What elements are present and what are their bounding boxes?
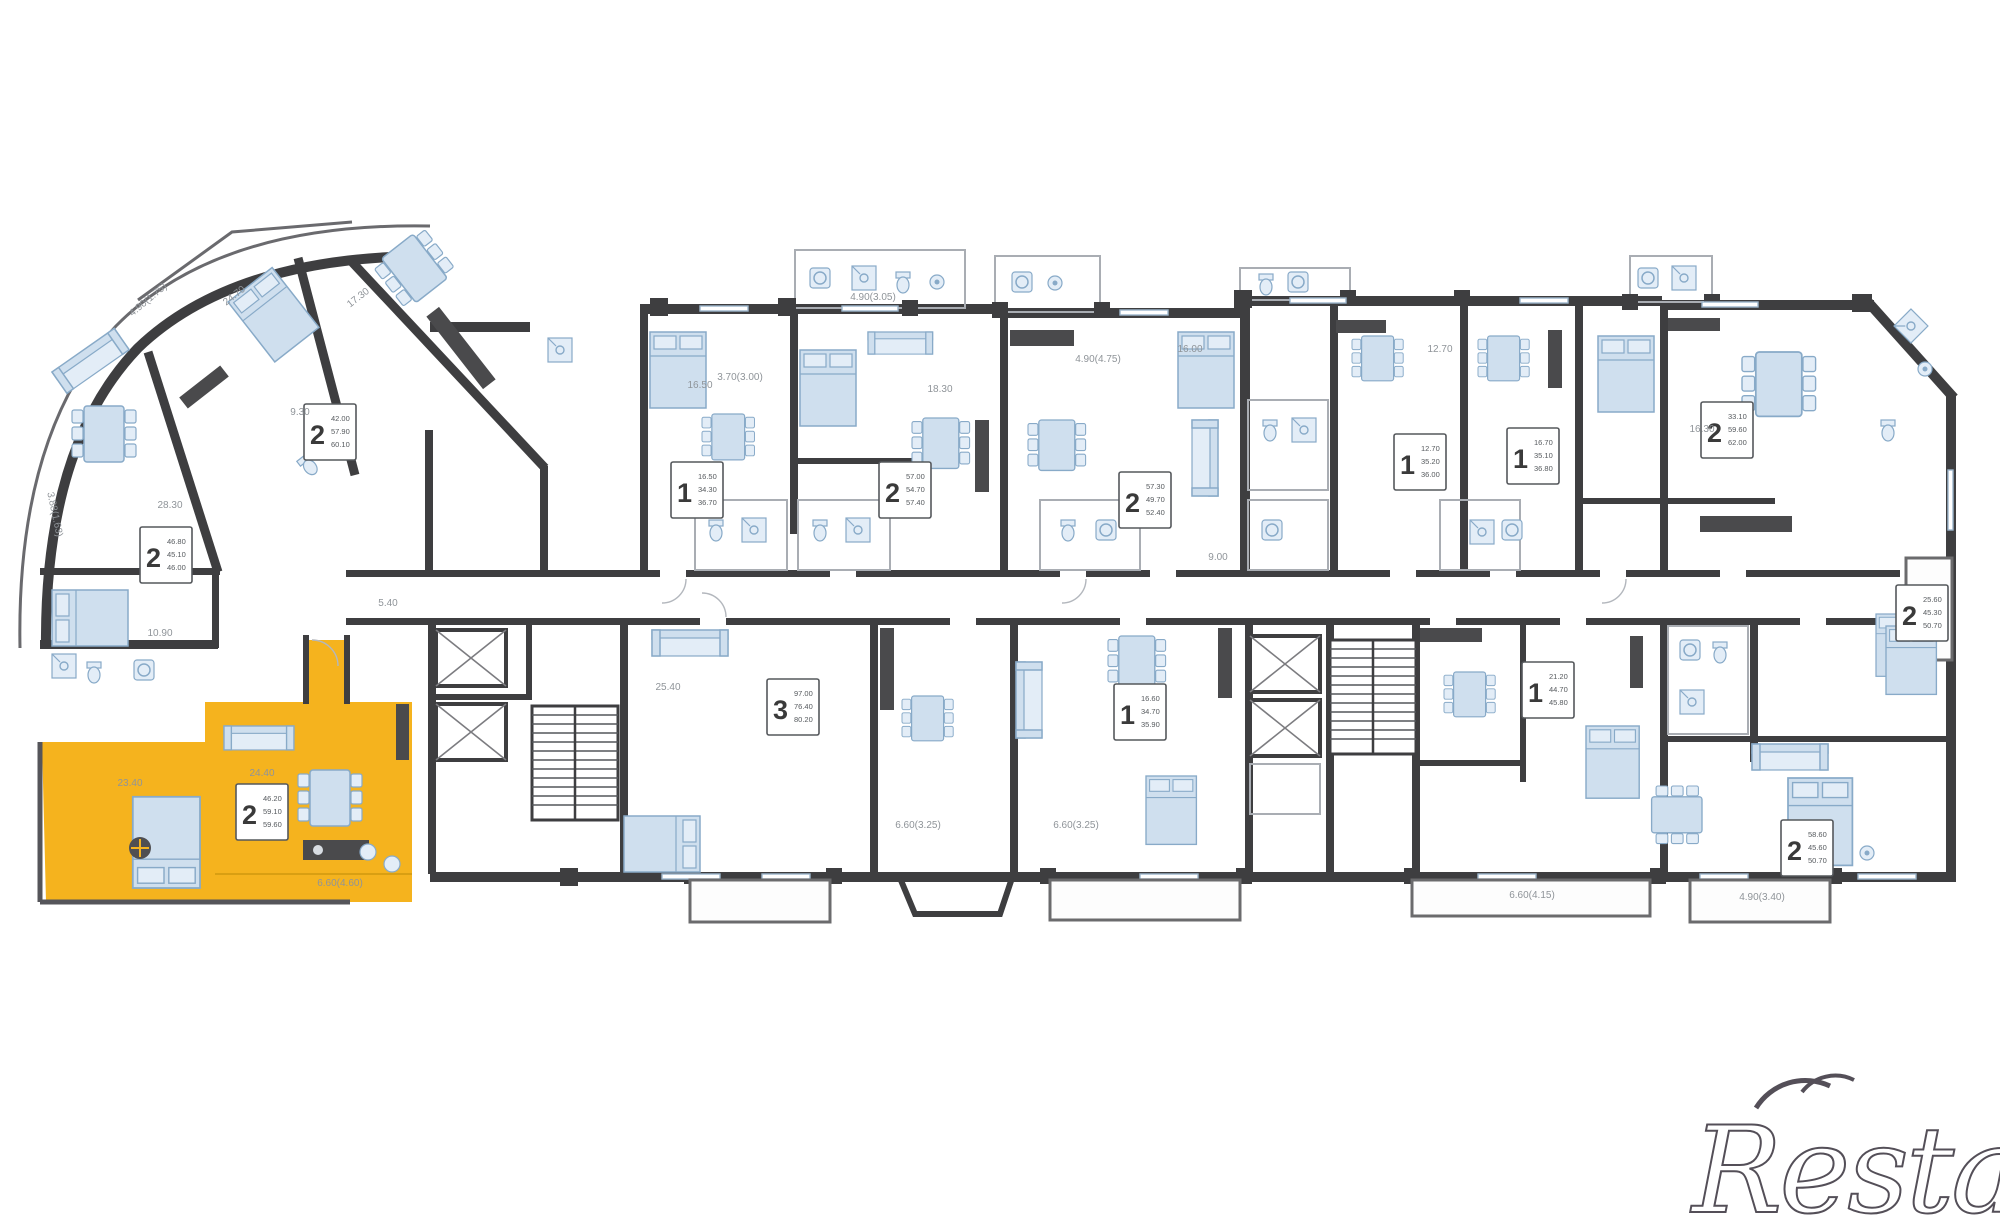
apartment-rooms-count: 2 <box>146 543 161 573</box>
apartment-rooms-count: 2 <box>885 478 900 508</box>
apartment-area-line: 59.60 <box>263 820 282 829</box>
washer-icon <box>1288 272 1308 292</box>
kitchen-counter-icon <box>880 628 894 710</box>
dimension-label: 24.40 <box>249 768 274 779</box>
apartment-label-highlighted[interactable]: 246.2059.1059.60 <box>236 784 288 840</box>
dimension-label: 4.90(4.75) <box>1075 354 1121 365</box>
shower-icon <box>1672 266 1696 290</box>
toilet-icon <box>1881 420 1895 441</box>
dimension-label: 16.00 <box>1177 344 1202 355</box>
dimension-label: 4.90(3.40) <box>1739 892 1785 903</box>
toilet-icon <box>813 520 827 541</box>
apartment-rooms-count: 2 <box>310 420 325 450</box>
shower-icon <box>52 654 76 678</box>
elevator-icon <box>1250 700 1320 756</box>
sink-icon <box>1048 276 1062 290</box>
shaft <box>1250 764 1320 814</box>
sofa-icon <box>224 726 294 750</box>
apartment-label[interactable]: 112.7035.2036.00 <box>1394 434 1446 490</box>
apartment-area-line: 34.30 <box>698 485 717 494</box>
apartment-area-line: 46.00 <box>167 563 186 572</box>
shower-icon <box>852 266 876 290</box>
apartment-area-line: 57.00 <box>906 472 925 481</box>
toilet-icon <box>896 272 910 293</box>
washer-icon <box>1638 268 1658 288</box>
corridor <box>346 568 1950 627</box>
dimension-label: 23.40 <box>117 778 142 789</box>
sofa-icon <box>1016 662 1042 738</box>
bed-icon <box>1598 336 1654 412</box>
dimension-label: 9.00 <box>1208 552 1228 563</box>
kitchen-counter-icon <box>303 840 369 860</box>
toilet-icon <box>1259 274 1273 295</box>
wardrobe-icon <box>179 365 229 408</box>
apartment-rooms-count: 2 <box>1787 836 1802 866</box>
apartment-rooms-count: 1 <box>1400 450 1415 480</box>
apartment-area-line: 60.10 <box>331 440 350 449</box>
apartment-area-line: 35.90 <box>1141 720 1160 729</box>
apartment-area-line: 35.20 <box>1421 457 1440 466</box>
apartment-area-line: 57.90 <box>331 427 350 436</box>
shower-icon <box>742 518 766 542</box>
wardrobe-icon <box>1668 318 1720 331</box>
kitchen-counter-icon <box>1420 628 1482 642</box>
washer-icon <box>134 660 154 680</box>
dimension-label: 25.40 <box>655 682 680 693</box>
apartment-area-line: 97.00 <box>794 689 813 698</box>
watermark: Restate <box>1690 1076 2000 1223</box>
apartment-area-line: 50.70 <box>1808 856 1827 865</box>
stairs-icon <box>532 706 618 820</box>
apartment-area-line: 35.10 <box>1534 451 1553 460</box>
dining-table-icon <box>298 770 362 826</box>
dimension-label: 6.60(3.25) <box>1053 820 1099 831</box>
dimension-label: 17.30 <box>345 286 372 310</box>
bed-icon <box>1586 726 1639 798</box>
floor-plan: 246.8045.1046.00242.0057.9060.10246.2059… <box>0 0 2000 1223</box>
dining-table-icon <box>1028 420 1086 470</box>
apartment-area-line: 50.70 <box>1923 621 1942 630</box>
wardrobe-icon <box>396 704 409 760</box>
apartment-rooms-count: 1 <box>677 478 692 508</box>
shower-icon <box>548 338 572 362</box>
apartment-area-line: 34.70 <box>1141 707 1160 716</box>
apartment-area-line: 59.10 <box>263 807 282 816</box>
kitchen-counter-icon <box>975 420 989 492</box>
washer-icon <box>1012 272 1032 292</box>
bed-icon <box>1146 776 1196 844</box>
toilet-icon <box>709 520 723 541</box>
kitchen-counter-icon <box>1548 330 1562 388</box>
apartment-area-line: 36.00 <box>1421 470 1440 479</box>
apartment-area-line: 45.60 <box>1808 843 1827 852</box>
balcony-chair-icon <box>360 844 376 860</box>
apartment-area-line: 45.80 <box>1549 698 1568 707</box>
apartment-area-line: 12.70 <box>1421 444 1440 453</box>
washer-icon <box>1502 520 1522 540</box>
kitchen-counter-icon <box>1700 516 1792 532</box>
apartment-label[interactable]: 225.6045.3050.70 <box>1896 585 1948 641</box>
wall <box>212 568 219 648</box>
apartment-label[interactable]: 257.0054.7057.40 <box>879 462 931 518</box>
toilet-icon <box>1713 642 1727 663</box>
dimension-label: 28.30 <box>157 500 182 511</box>
apartment-area-line: 25.60 <box>1923 595 1942 604</box>
apartment-area-line: 59.60 <box>1728 425 1747 434</box>
shower-icon <box>846 518 870 542</box>
stairs-icon <box>1330 640 1416 754</box>
shower-icon <box>1680 690 1704 714</box>
elevator-icon <box>1250 636 1320 692</box>
dining-table-icon <box>902 696 953 741</box>
dimension-label: 3.70(3.00) <box>717 372 763 383</box>
apartment-area-line: 33.10 <box>1728 412 1747 421</box>
dimension-label: 5.40 <box>378 598 398 609</box>
apartment-rooms-count: 2 <box>1902 601 1917 631</box>
apartment-area-line: 57.40 <box>906 498 925 507</box>
apartment-label[interactable]: 121.2044.7045.80 <box>1522 662 1574 718</box>
apartment-area-line: 57.30 <box>1146 482 1165 491</box>
diagonal-wall <box>352 262 545 468</box>
dining-table-icon <box>912 418 970 468</box>
apartment-area-line: 46.80 <box>167 537 186 546</box>
toilet-icon <box>1061 520 1075 541</box>
apartment-area-line: 45.10 <box>167 550 186 559</box>
sink-icon <box>313 845 323 855</box>
kitchen-counter-icon <box>1218 628 1232 698</box>
elevator-icon <box>436 630 506 686</box>
apartment-area-line: 45.30 <box>1923 608 1942 617</box>
sofa-icon <box>652 630 728 656</box>
apartment-area-line: 52.40 <box>1146 508 1165 517</box>
apartment-area-line: 42.00 <box>331 414 350 423</box>
dimension-label: 9.30 <box>290 407 310 418</box>
apartment-rooms-count: 1 <box>1120 700 1135 730</box>
apartment-label[interactable]: 258.6045.6050.70 <box>1781 820 1833 876</box>
dimension-label: 10.90 <box>147 628 172 639</box>
shower-icon <box>1470 520 1494 544</box>
wall <box>303 635 309 704</box>
dining-table-icon <box>72 406 136 462</box>
apartment-area-line: 54.70 <box>906 485 925 494</box>
apartment-area-line: 16.50 <box>698 472 717 481</box>
dimension-label: 16.30 <box>1689 424 1714 435</box>
apartment-label[interactable]: 116.6034.7035.90 <box>1114 684 1166 740</box>
sofa-icon <box>52 328 129 393</box>
apartment-label[interactable]: 257.3049.7052.40 <box>1119 472 1171 528</box>
dining-table-icon <box>1478 336 1529 381</box>
balcony-chair-icon <box>384 856 400 872</box>
apartment-label[interactable]: 246.8045.1046.00 <box>140 527 192 583</box>
shower-icon <box>1292 418 1316 442</box>
apartment-area-line: 21.20 <box>1549 672 1568 681</box>
apartment-area-line: 44.70 <box>1549 685 1568 694</box>
plant-icon <box>129 837 151 859</box>
dimension-label: 4.90(3.05) <box>850 292 896 303</box>
apartment-label[interactable]: 242.0057.9060.10 <box>304 404 356 460</box>
sofa-icon <box>1752 744 1828 770</box>
dining-table-icon <box>1444 672 1495 717</box>
sofa-icon <box>868 332 933 354</box>
dimension-label: 16.50 <box>687 380 712 391</box>
bed-icon <box>624 816 700 872</box>
dimension-label: 6.60(4.60) <box>317 878 363 889</box>
dimension-label: 18.30 <box>927 384 952 395</box>
apartment-area-line: 16.60 <box>1141 694 1160 703</box>
kitchen-counter-icon <box>1010 330 1074 346</box>
dimension-label: 4.90(1.75) <box>127 281 169 319</box>
toilet-icon <box>87 662 101 683</box>
bay-window <box>900 878 1012 914</box>
toilet-icon <box>1263 420 1277 441</box>
apartment-area-line: 49.70 <box>1146 495 1165 504</box>
wardrobe-icon <box>1630 636 1643 688</box>
apartment-area-line: 16.70 <box>1534 438 1553 447</box>
washer-icon <box>1262 520 1282 540</box>
dining-table-icon <box>702 414 754 460</box>
sink-icon <box>1860 846 1874 860</box>
sink-icon <box>1918 362 1932 376</box>
bed-icon <box>650 332 706 408</box>
sofa-icon <box>1192 420 1218 496</box>
floor-plan-screenshot: 246.8045.1046.00242.0057.9060.10246.2059… <box>0 0 2000 1223</box>
apartment-rooms-count: 2 <box>1125 488 1140 518</box>
bed-icon <box>52 590 128 646</box>
apartment-rooms-count: 2 <box>242 800 257 830</box>
apartment-rooms-count: 1 <box>1513 444 1528 474</box>
apartment-area-line: 58.60 <box>1808 830 1827 839</box>
apartment-rooms-count: 3 <box>773 695 788 725</box>
wall <box>344 635 350 704</box>
dining-table-icon <box>1108 636 1166 686</box>
wall <box>40 568 220 575</box>
dining-table-icon <box>1652 786 1702 844</box>
apartment-label[interactable]: 397.0076.4080.20 <box>767 679 819 735</box>
dining-table-icon <box>1352 336 1403 381</box>
bed-icon <box>800 350 856 426</box>
apartment-area-line: 80.20 <box>794 715 813 724</box>
apartment-area-line: 36.70 <box>698 498 717 507</box>
washer-icon <box>1680 640 1700 660</box>
apartment-area-line: 76.40 <box>794 702 813 711</box>
dimension-label: 12.70 <box>1427 344 1452 355</box>
apartment-rooms-count: 1 <box>1528 678 1543 708</box>
apartment-label[interactable]: 116.5034.3036.70 <box>671 462 723 518</box>
wall <box>540 466 548 574</box>
apartment-area-line: 62.00 <box>1728 438 1747 447</box>
dimension-label: 6.60(4.15) <box>1509 890 1555 901</box>
dimension-label: 6.60(3.25) <box>895 820 941 831</box>
washer-icon <box>810 268 830 288</box>
washer-icon <box>1096 520 1116 540</box>
apartment-area-line: 36.80 <box>1534 464 1553 473</box>
sink-icon <box>930 275 944 289</box>
apartment-area-line: 46.20 <box>263 794 282 803</box>
watermark-text: Restate <box>1690 1102 2000 1223</box>
kitchen-counter-icon <box>1336 320 1386 333</box>
apartment-label[interactable]: 116.7035.1036.80 <box>1507 428 1559 484</box>
elevator-icon <box>436 704 506 760</box>
